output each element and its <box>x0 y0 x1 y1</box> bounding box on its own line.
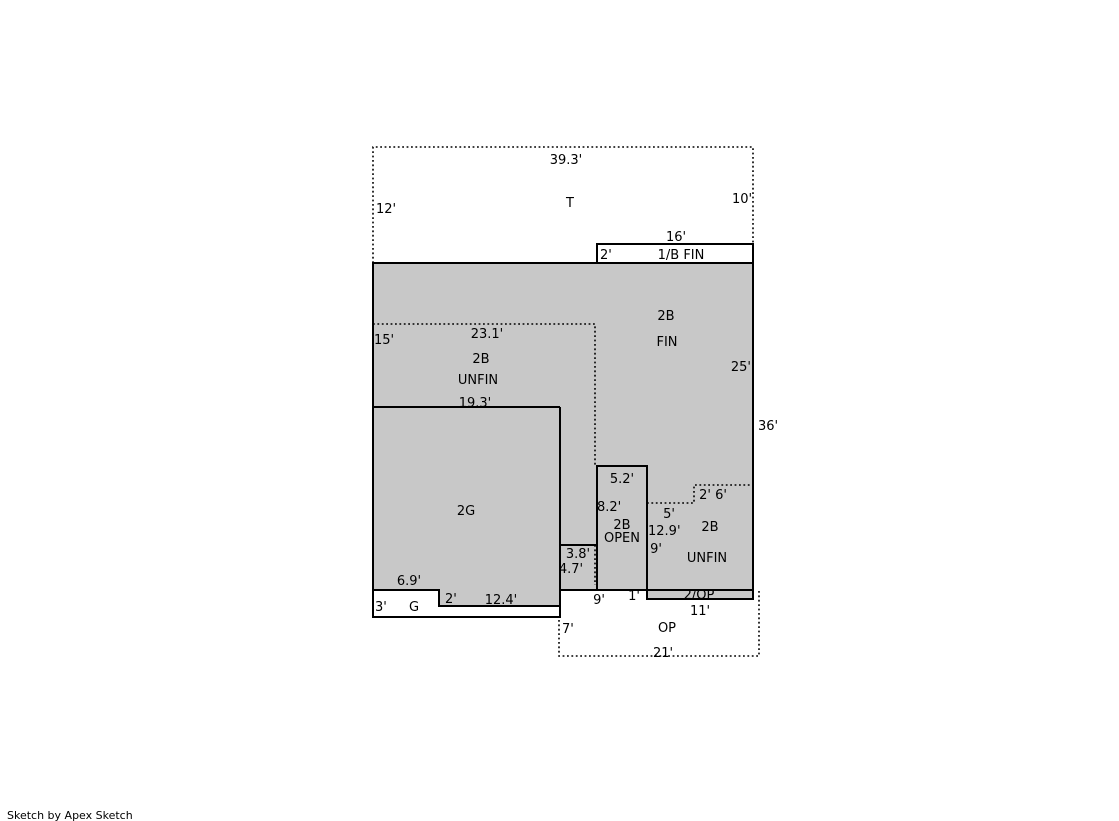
label-open-2b-line2: OPEN <box>604 531 640 546</box>
label-fin-2b-line1: 2B <box>657 309 674 324</box>
label-fin-2b-line2: FIN <box>656 335 677 350</box>
label-t-left-height: 12' <box>376 202 396 217</box>
label-fin-2b-right-height: 25' <box>731 360 751 375</box>
label-op2-strip-width: 11' <box>690 604 710 619</box>
label-notch-height: 2' <box>699 488 711 503</box>
label-op2-strip: 2/OP <box>684 588 715 603</box>
label-op-width: 21' <box>653 646 673 661</box>
label-notch-width: 5' <box>663 507 675 522</box>
label-corridor-width: 3.8' <box>566 547 590 562</box>
label-unfin-2b-width: 23.1' <box>471 327 504 342</box>
label-strip-width: 12.4' <box>485 593 518 608</box>
label-unfin-2b-r-height: 12.9' <box>648 524 681 539</box>
label-open-2b-height: 8.2' <box>597 500 621 515</box>
label-unfin-2b-height: 15' <box>374 333 394 348</box>
label-overall-right-height: 36' <box>758 419 778 434</box>
label-g-bay-width: 6.9' <box>397 574 421 589</box>
label-t-area: T <box>565 196 574 211</box>
sketch-canvas: 39.3' T 12' 10' 16' 2' 1/B FIN 2B FIN 25… <box>0 0 1119 821</box>
footer-credit: Sketch by Apex Sketch <box>7 809 133 821</box>
label-t-right-height: 10' <box>732 192 752 207</box>
label-porch-offset: 9' <box>593 593 605 608</box>
label-garage-width: 19.3' <box>459 396 492 411</box>
label-garage-area: 2G <box>457 504 475 519</box>
label-g-bay-height: 3' <box>375 600 387 615</box>
label-op-height: 7' <box>562 622 574 637</box>
label-porch-step: 1' <box>628 589 640 604</box>
label-fin-1b-height: 2' <box>600 248 612 263</box>
label-fin-1b-width: 16' <box>666 230 686 245</box>
label-op-area: OP <box>658 621 676 636</box>
label-g-bay: G <box>409 600 419 615</box>
label-corridor-height: 4.7' <box>559 562 583 577</box>
label-unfin-2b-r-line1: 2B <box>701 520 718 535</box>
label-strip-step-height: 2' <box>445 592 457 607</box>
floorplan-sketch: 39.3' T 12' 10' 16' 2' 1/B FIN 2B FIN 25… <box>0 0 1119 821</box>
label-unfin-2b-r-line2: UNFIN <box>687 551 727 566</box>
label-open-2b-width: 5.2' <box>610 472 634 487</box>
label-t-width: 39.3' <box>550 153 583 168</box>
label-unfin-2b-line2: UNFIN <box>458 373 498 388</box>
label-fin-1b: 1/B FIN <box>658 248 705 263</box>
label-notch-top-width: 6' <box>715 488 727 503</box>
label-unfin-2b-r-lower-height: 9' <box>650 542 662 557</box>
label-unfin-2b-line1: 2B <box>472 352 489 367</box>
